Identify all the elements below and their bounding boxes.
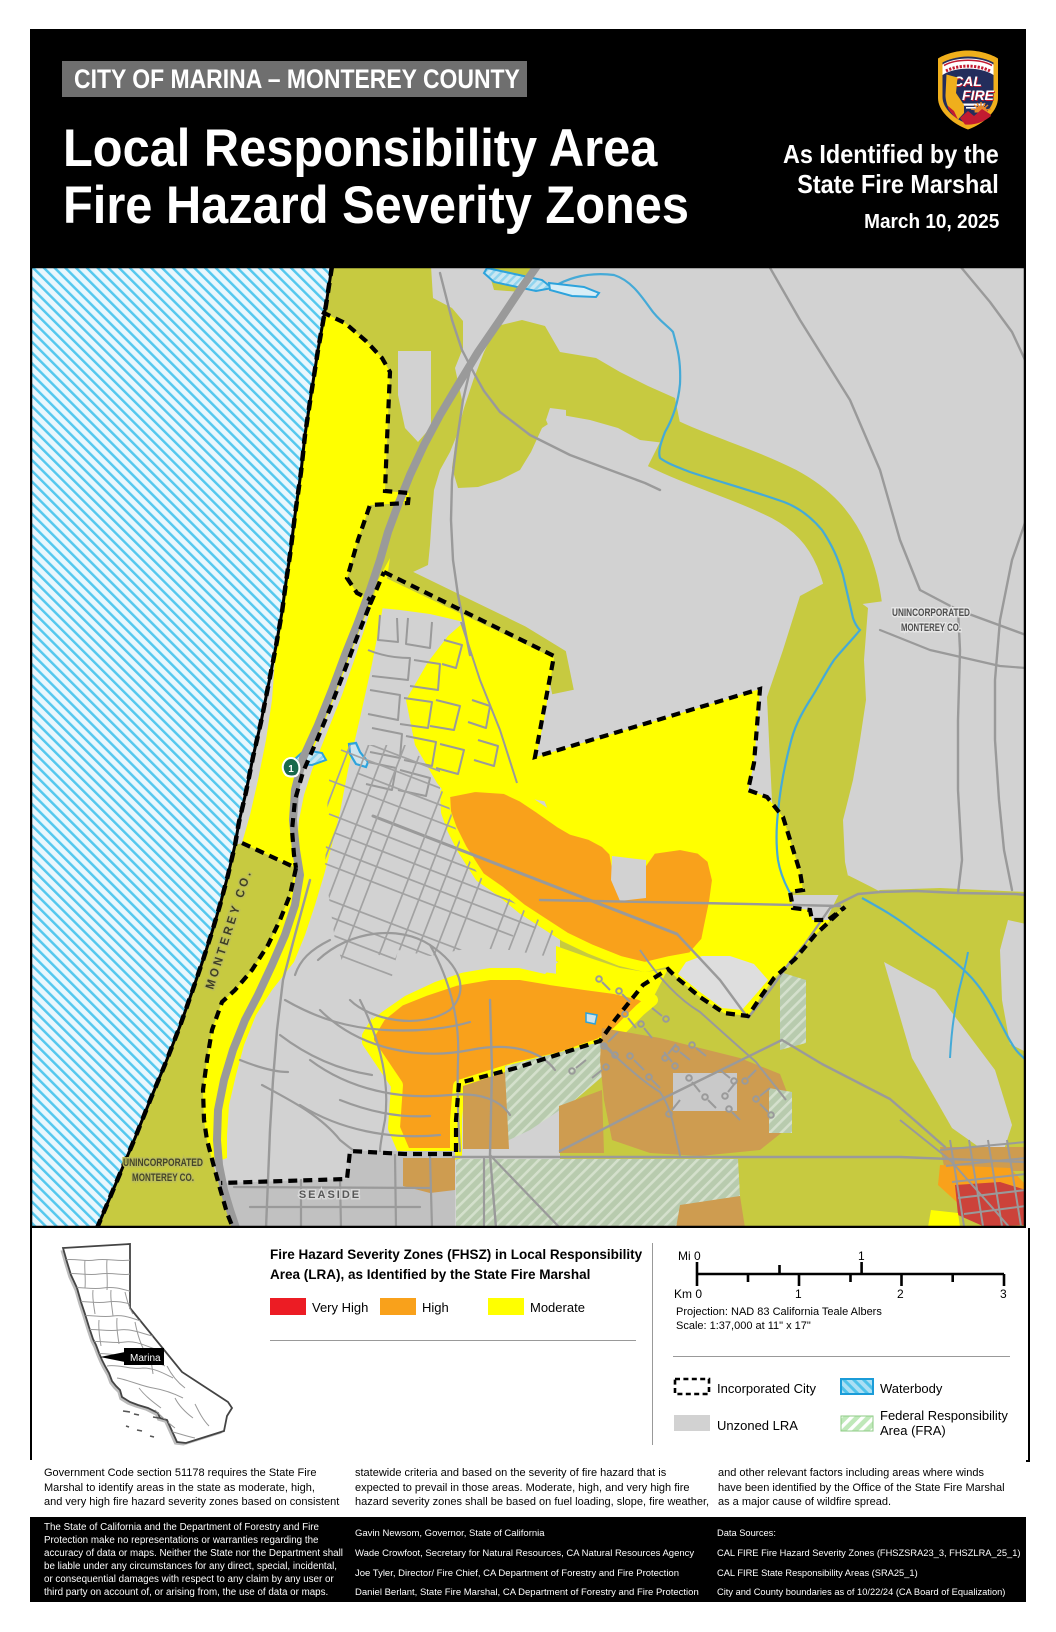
svg-text:FIRE: FIRE: [962, 87, 995, 103]
svg-text:Km 0: Km 0: [674, 1287, 702, 1301]
svg-text:2: 2: [897, 1287, 904, 1301]
svg-text:1: 1: [795, 1287, 802, 1301]
svg-text:UNINCORPORATED: UNINCORPORATED: [123, 1157, 203, 1169]
svg-text:SEASIDE: SEASIDE: [299, 1189, 361, 1201]
svg-text:UNINCORPORATED: UNINCORPORATED: [892, 607, 970, 619]
svg-text:1: 1: [288, 764, 294, 775]
svg-text:Marina: Marina: [130, 1353, 161, 1364]
svg-text:MONTEREY CO.: MONTEREY CO.: [901, 622, 961, 634]
svg-text:MONTEREY CO.: MONTEREY CO.: [132, 1172, 194, 1184]
svg-text:Mi 0: Mi 0: [678, 1249, 701, 1263]
svg-text:3: 3: [1000, 1287, 1007, 1301]
svg-text:1: 1: [858, 1249, 865, 1263]
